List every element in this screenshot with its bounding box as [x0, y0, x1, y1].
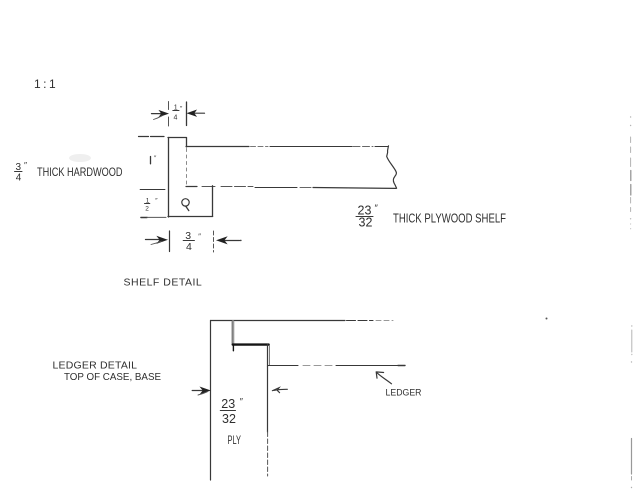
svg-text:THICK PLYWOOD SHELF: THICK PLYWOOD SHELF: [393, 211, 506, 226]
svg-text:LEDGER DETAIL: LEDGER DETAIL: [53, 360, 138, 372]
svg-text:″: ″: [24, 160, 27, 170]
svg-text:4: 4: [174, 115, 178, 122]
svg-text:4: 4: [16, 173, 22, 184]
svg-text:2: 2: [145, 206, 149, 213]
svg-text:23: 23: [221, 397, 235, 411]
svg-text:1:1: 1:1: [34, 77, 58, 91]
svg-text:SHELF DETAIL: SHELF DETAIL: [124, 277, 203, 289]
svg-text:32: 32: [359, 216, 373, 230]
svg-text:4: 4: [186, 241, 192, 253]
svg-text:″: ″: [198, 232, 201, 241]
svg-text:32: 32: [222, 412, 236, 426]
svg-text:LEDGER: LEDGER: [386, 388, 422, 398]
svg-text:PLY: PLY: [228, 435, 242, 447]
svg-text:THICK HARDWOOD: THICK HARDWOOD: [37, 165, 123, 179]
svg-text:TOP OF CASE, BASE: TOP OF CASE, BASE: [64, 371, 161, 383]
